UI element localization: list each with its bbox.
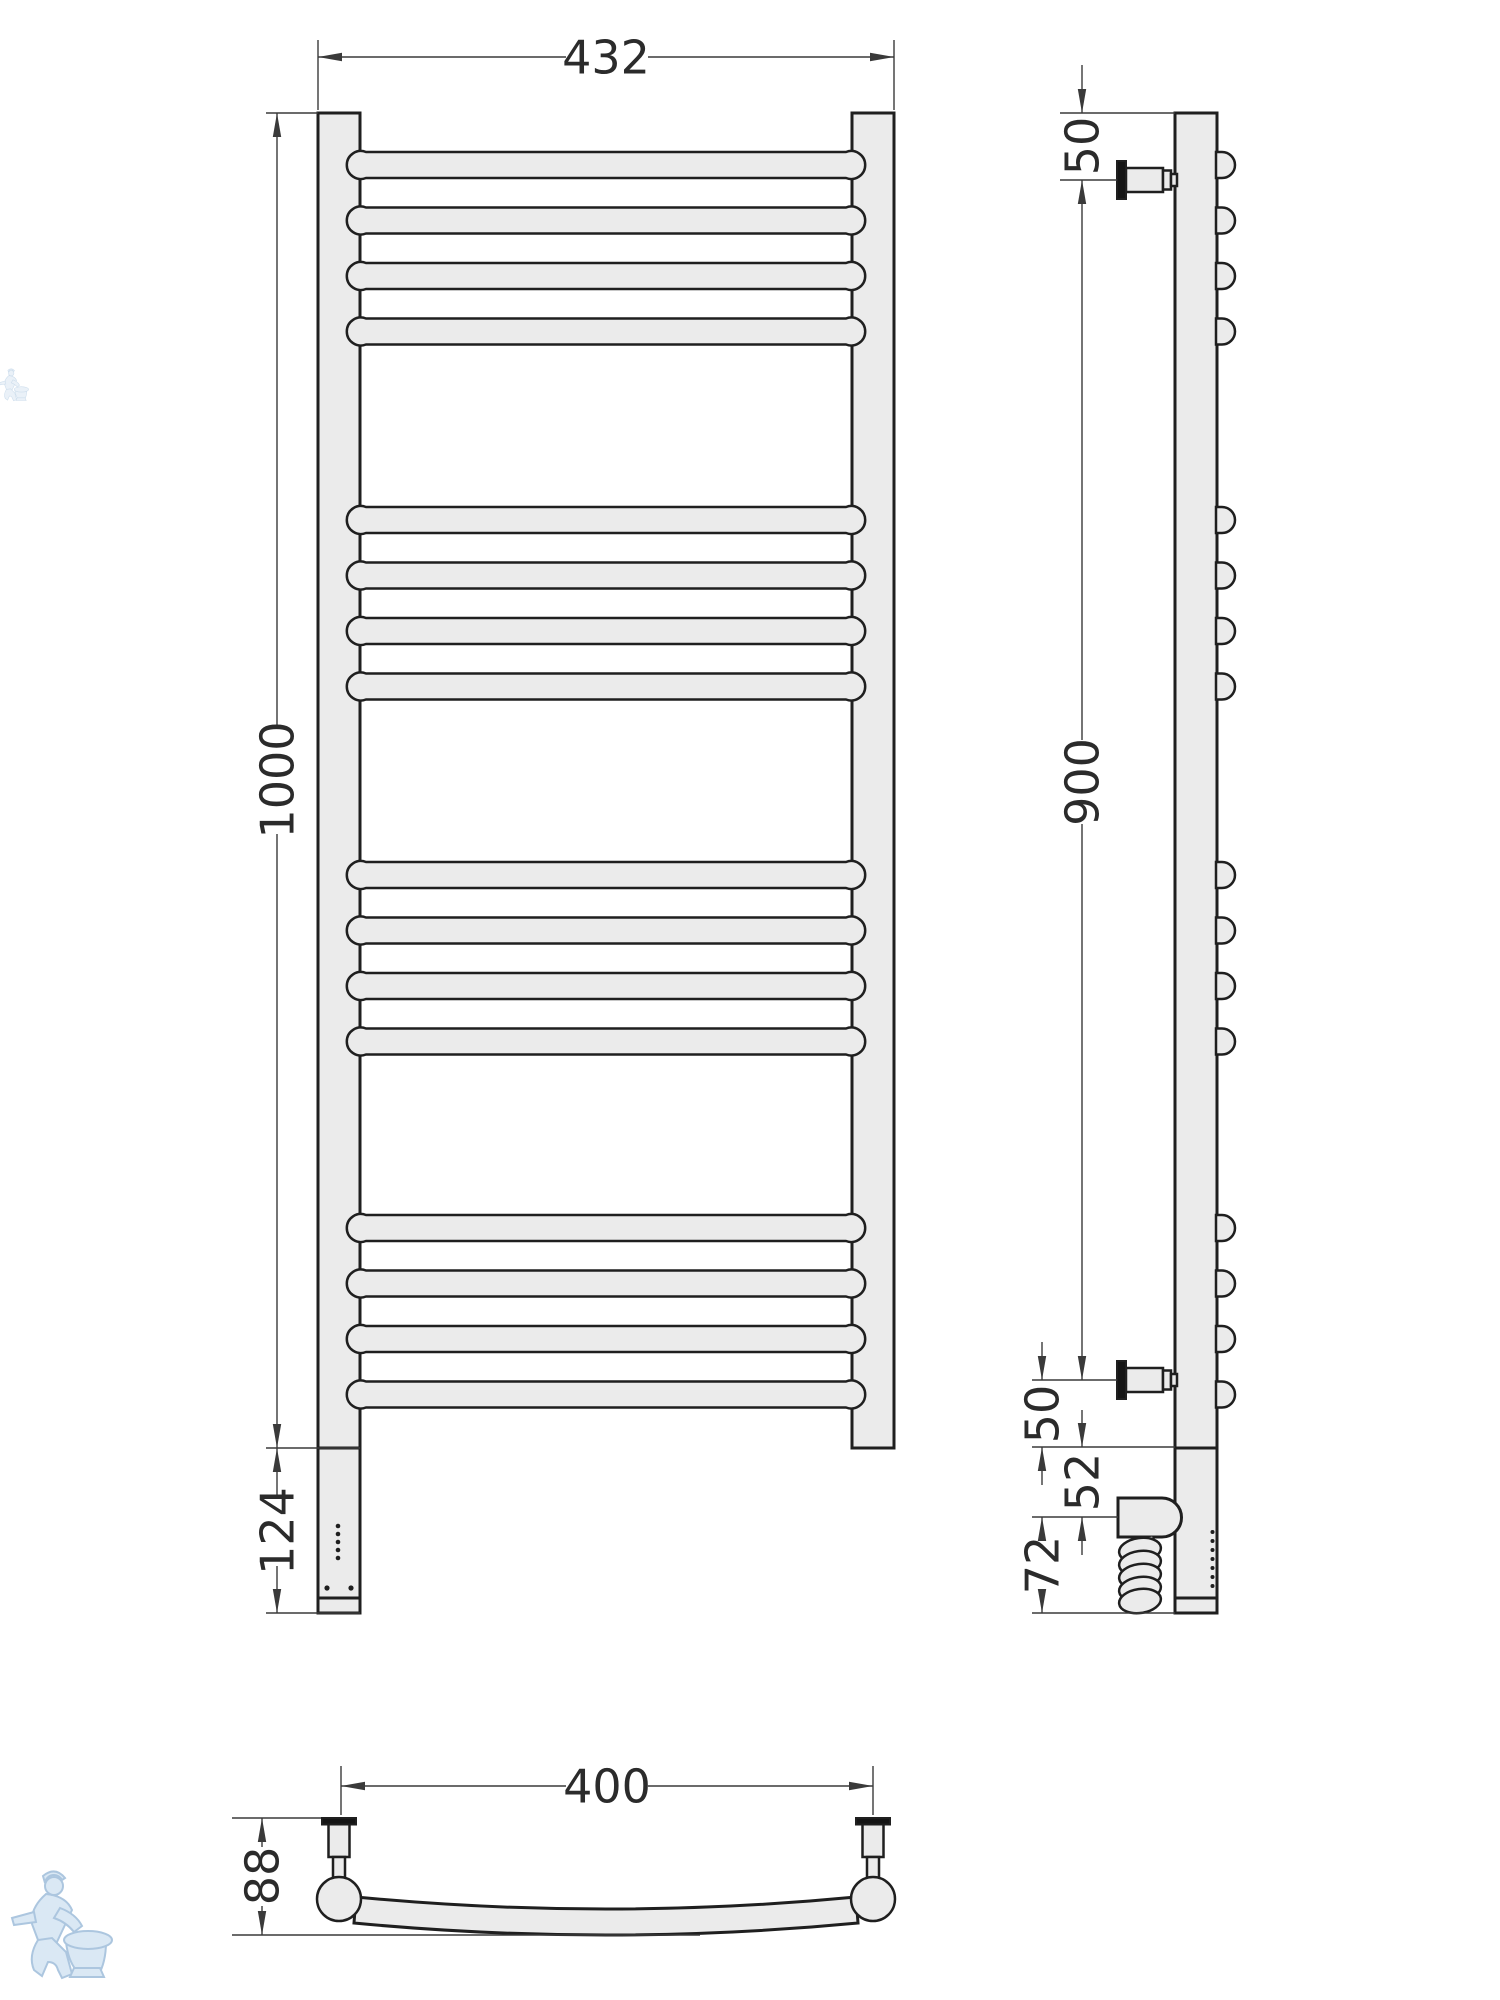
top-view: 400 88	[232, 1760, 895, 1935]
dim-label-top-50: 50	[1056, 117, 1110, 176]
dim-label-88: 88	[236, 1847, 290, 1906]
dim-overall-width: 432	[318, 31, 894, 110]
side-rung-ends	[1216, 152, 1235, 1408]
spiral-cable	[1118, 1535, 1163, 1616]
upper-wall-bracket	[1117, 161, 1177, 199]
dim-label-1000: 1000	[251, 721, 305, 838]
plumber-with-toilet-watermark	[12, 1871, 112, 1978]
lower-wall-bracket	[1117, 1361, 1177, 1399]
dim-label-bottom-50: 50	[1016, 1385, 1070, 1444]
front-left-post	[318, 113, 360, 1448]
plumber-watermark-small	[0, 369, 29, 401]
dim-label-52: 52	[1056, 1453, 1110, 1512]
dim-label-432: 432	[562, 31, 650, 85]
side-bottom-cap	[1175, 1598, 1217, 1613]
side-view: 50 900 50 52 72	[1016, 65, 1235, 1616]
heating-element	[1118, 1498, 1182, 1537]
front-right-post	[852, 113, 894, 1448]
dim-label-400: 400	[563, 1760, 651, 1814]
top-right-bracket	[851, 1818, 895, 1921]
front-view: 432 1000 124	[251, 31, 894, 1613]
towel-rail-technical-drawing: 432 1000 124	[0, 0, 1500, 2000]
dim-mount-centers: 400	[341, 1760, 873, 1815]
dim-label-124: 124	[251, 1487, 305, 1575]
dim-label-72: 72	[1016, 1536, 1070, 1595]
front-rungs	[347, 151, 865, 1409]
front-bottom-housing	[318, 1448, 360, 1598]
front-bottom-cap	[318, 1598, 360, 1613]
top-curved-rung	[354, 1897, 858, 1935]
dim-label-900: 900	[1056, 738, 1110, 826]
top-left-bracket	[317, 1818, 361, 1921]
side-post	[1175, 113, 1217, 1448]
drawing-sheet: 432 1000 124	[0, 0, 1500, 2000]
